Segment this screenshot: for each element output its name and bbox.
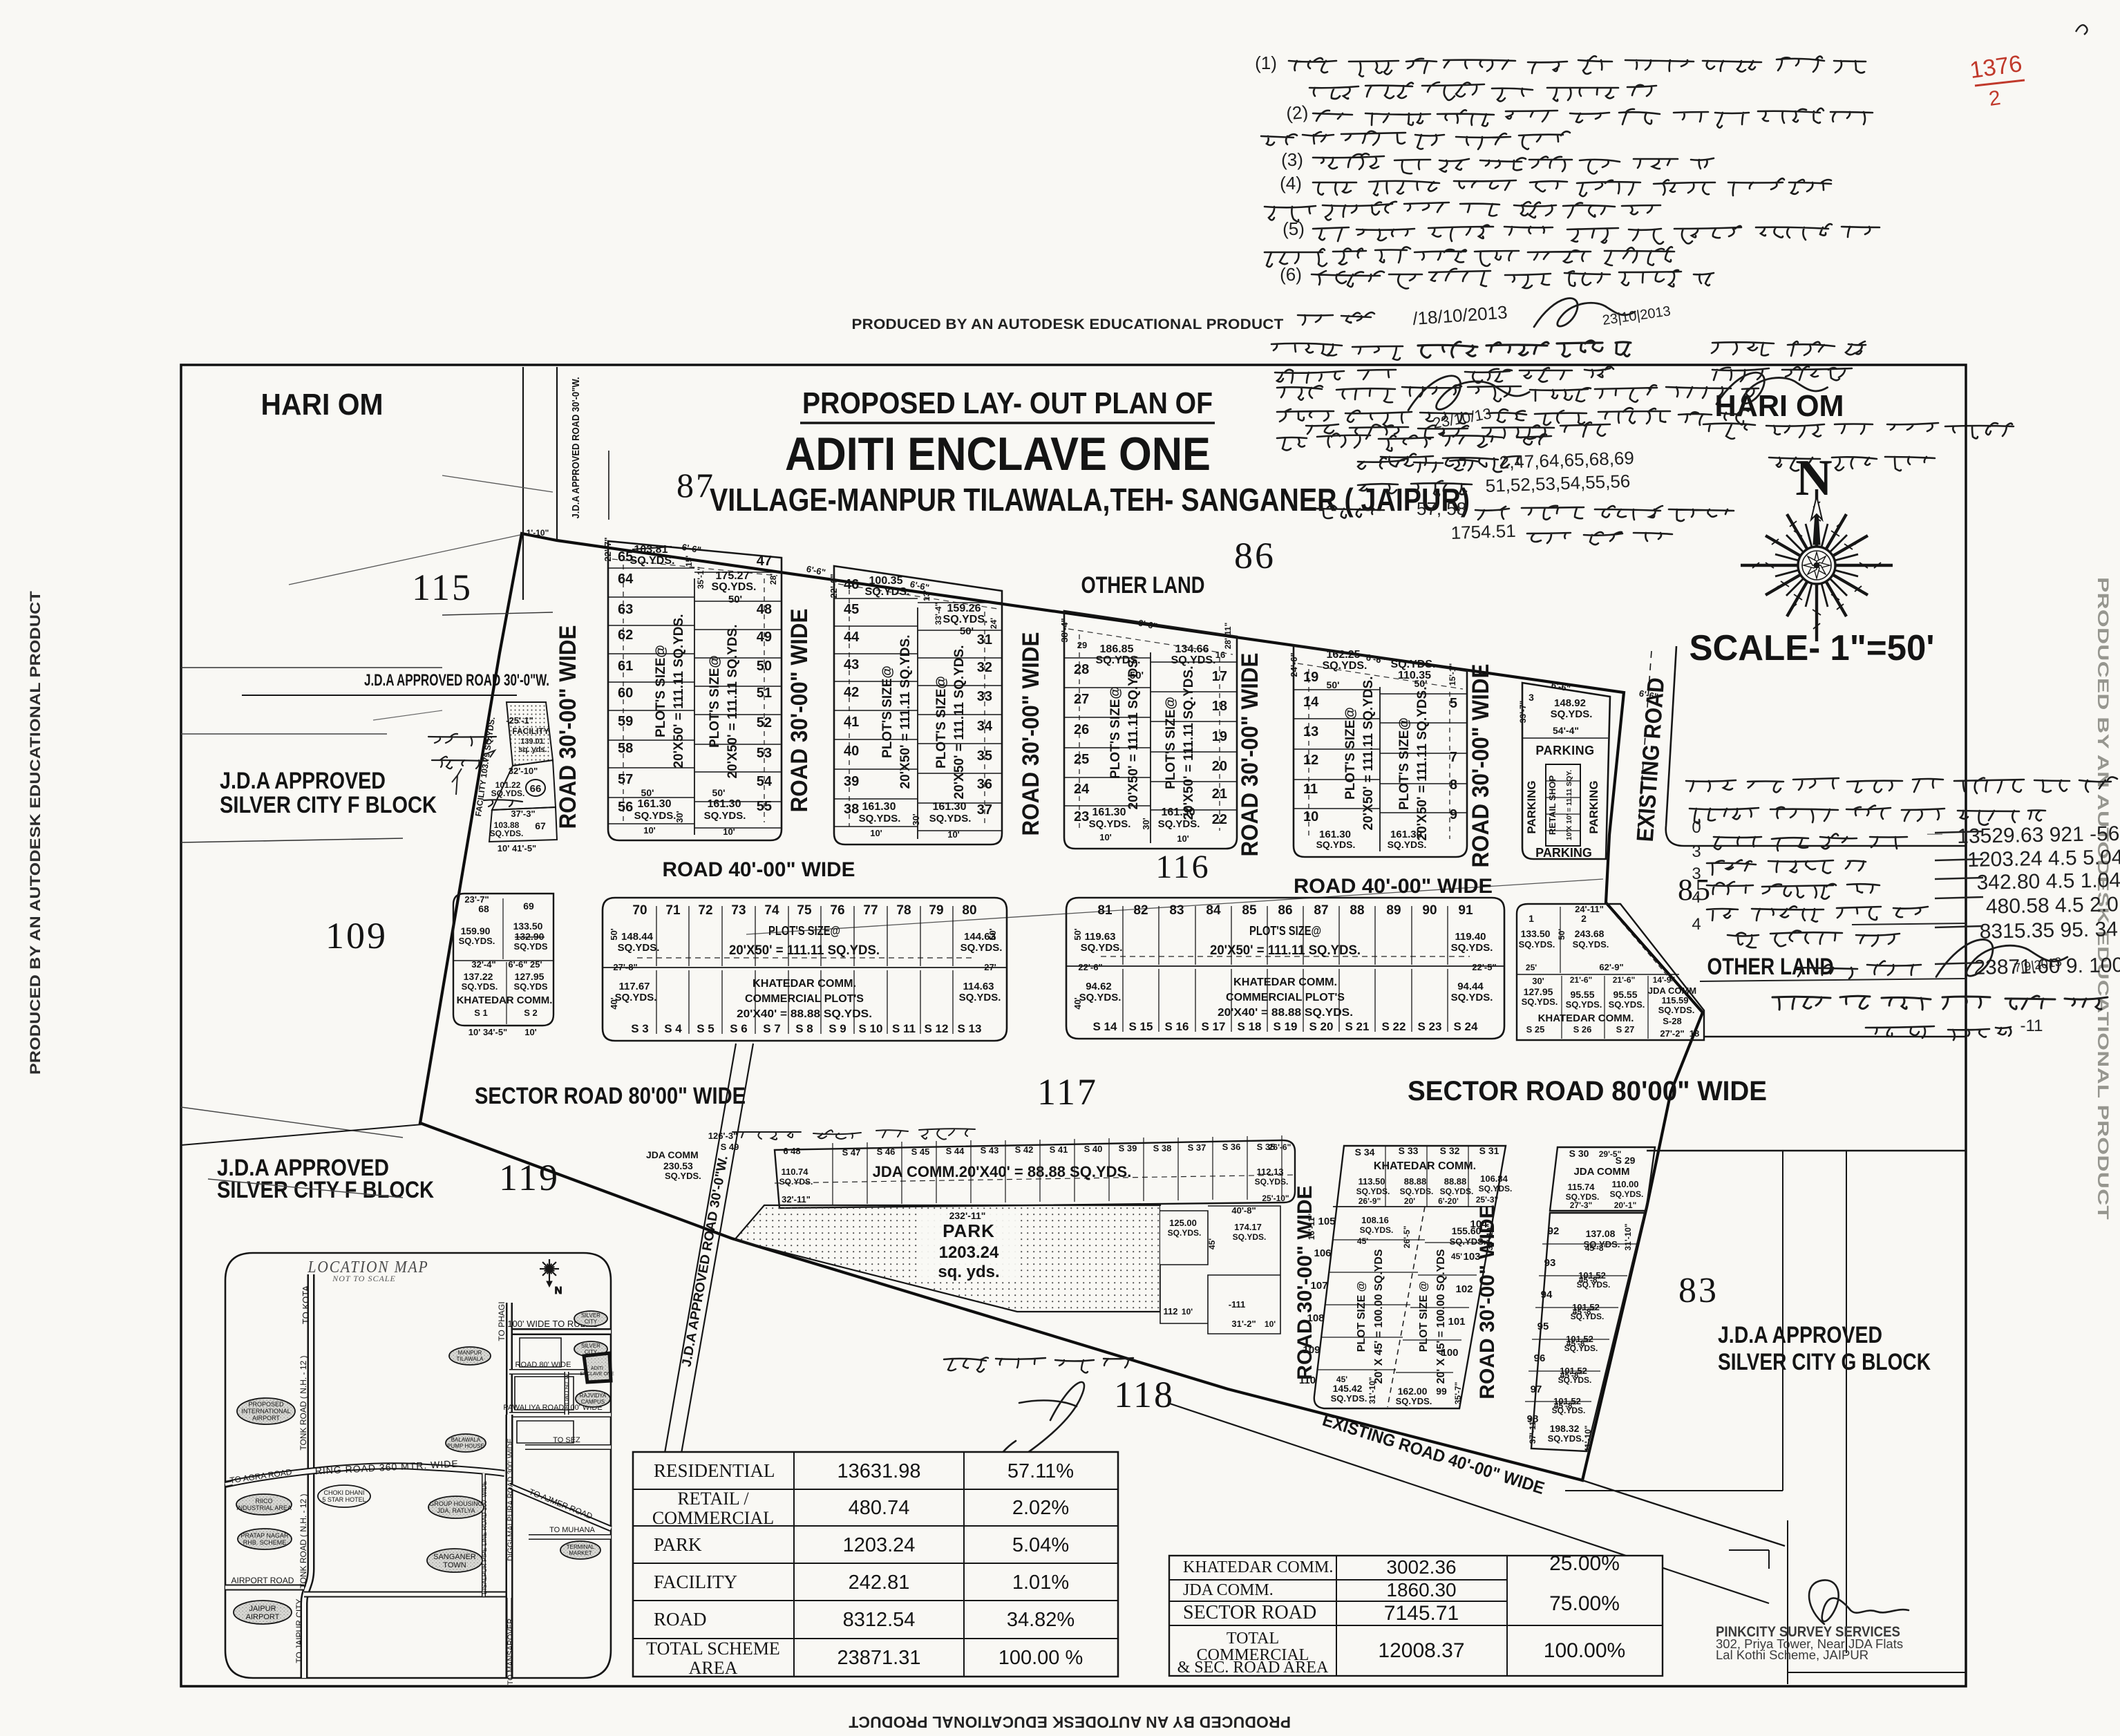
svg-text:BISALPUR PIPE LINE ROAD 100' W: BISALPUR PIPE LINE ROAD 100' WIDE (481, 1481, 488, 1594)
svg-text:S 27: S 27 (1616, 1024, 1635, 1035)
svg-text:35'-7": 35'-7" (1453, 1382, 1463, 1405)
svg-text:SQ.YDS.: SQ.YDS. (490, 829, 524, 838)
svg-text:22'-7": 22'-7" (603, 537, 613, 561)
svg-text:10': 10' (643, 825, 656, 836)
svg-text:36: 36 (977, 777, 992, 792)
svg-text:PLOT'S SIZE@: PLOT'S SIZE@ (1397, 717, 1412, 810)
svg-text:242.81: 242.81 (849, 1572, 910, 1594)
svg-text:ROAD 30'-00" WIDE: ROAD 30'-00" WIDE (1018, 632, 1044, 836)
svg-text:117: 117 (1037, 1071, 1098, 1113)
svg-text:101.52: 101.52 (1566, 1334, 1593, 1344)
svg-text:SQ.YDS.: SQ.YDS. (1158, 818, 1200, 830)
svg-text:79: 79 (929, 903, 943, 918)
svg-text:SQ.YDS.: SQ.YDS. (618, 942, 660, 954)
svg-text:PLOT'S SIZE@: PLOT'S SIZE@ (768, 924, 840, 938)
svg-text:GROUP HOUSING: GROUP HOUSING (429, 1500, 482, 1507)
svg-text:0: 0 (1692, 818, 1701, 837)
svg-text:93: 93 (1544, 1257, 1556, 1269)
svg-text:SQ.YDS.: SQ.YDS. (1451, 942, 1493, 954)
svg-text:KHATEDAR COMM.: KHATEDAR COMM. (1183, 1558, 1333, 1576)
svg-text:119.40: 119.40 (1455, 931, 1486, 943)
svg-text:57: 57 (618, 772, 633, 787)
svg-text:1203.24 4.5 5.04: 1203.24 4.5 5.04 (1967, 846, 2120, 871)
svg-text:HARI OM: HARI OM (1715, 389, 1844, 423)
svg-text:SQ.YDS.: SQ.YDS. (1522, 997, 1558, 1007)
svg-text:9: 9 (1450, 807, 1457, 822)
svg-text:(3): (3) (1281, 149, 1303, 170)
svg-text:89: 89 (1386, 903, 1401, 918)
svg-text:28': 28' (768, 574, 778, 585)
svg-text:133.50: 133.50 (513, 921, 543, 932)
svg-text:90: 90 (1422, 903, 1437, 918)
svg-text:2: 2 (1581, 913, 1587, 924)
svg-text:SQ.YDS.: SQ.YDS. (1451, 992, 1493, 1003)
svg-text:KHATEDAR COMM.: KHATEDAR COMM. (457, 994, 553, 1006)
svg-text:12: 12 (1303, 753, 1318, 768)
svg-text:-111: -111 (1229, 1299, 1246, 1310)
svg-text:S 11: S 11 (892, 1022, 916, 1035)
svg-text:13529.63 921 -56: 13529.63 921 -56 (1957, 822, 2120, 848)
svg-text:N: N (1795, 450, 1832, 507)
svg-text:-11: -11 (2020, 1017, 2043, 1035)
svg-text:103.81: 103.81 (634, 544, 668, 556)
svg-text:J.D.A APPROVED ROAD 30'-0"W.: J.D.A APPROVED ROAD 30'-0"W. (364, 671, 549, 690)
svg-text:(1): (1) (1255, 53, 1277, 73)
svg-text:6'-6" 25': 6'-6" 25' (508, 959, 542, 970)
svg-text:S 31: S 31 (1479, 1145, 1499, 1156)
svg-text:1'-10": 1'-10" (527, 528, 549, 538)
svg-text:SQ.YDS.: SQ.YDS. (1168, 1228, 1202, 1238)
svg-text:161.30: 161.30 (638, 798, 672, 810)
svg-text:94.62: 94.62 (1086, 981, 1112, 992)
svg-text:61: 61 (618, 659, 633, 674)
svg-text:ENCLAVE ONE: ENCLAVE ONE (580, 1372, 614, 1377)
svg-text:ROAD: ROAD (654, 1609, 707, 1630)
svg-text:77: 77 (863, 903, 878, 918)
svg-text:S 18: S 18 (1238, 1020, 1262, 1033)
svg-text:JDA COMM: JDA COMM (646, 1149, 699, 1160)
svg-text:134.66: 134.66 (1175, 643, 1209, 655)
svg-text:113.50: 113.50 (1358, 1176, 1385, 1187)
svg-text:32'-10": 32'-10" (509, 766, 538, 776)
svg-text:161.30: 161.30 (1162, 806, 1195, 818)
svg-text:S 2: S 2 (524, 1008, 538, 1018)
svg-text:JDA COMM.: JDA COMM. (1183, 1581, 1274, 1599)
svg-text:95.55: 95.55 (1570, 989, 1594, 1000)
svg-text:FACILITY: FACILITY (654, 1572, 737, 1592)
svg-text:SQ.YDS.: SQ.YDS. (1552, 1406, 1586, 1415)
svg-text:148.92: 148.92 (1554, 697, 1586, 709)
svg-text:SQ.YDS.: SQ.YDS. (1391, 659, 1436, 670)
svg-text:39: 39 (844, 774, 859, 789)
svg-text:CITY: CITY (585, 1319, 598, 1325)
svg-text:8315.35 95. 34: 8315.35 95. 34 (1979, 918, 2118, 943)
svg-text:20'X50' = 111.11 SQ.YDS.: 20'X50' = 111.11 SQ.YDS. (672, 614, 686, 768)
svg-text:TO SEZ: TO SEZ (553, 1436, 580, 1444)
svg-text:19: 19 (1303, 670, 1318, 685)
svg-text:67: 67 (535, 820, 546, 831)
svg-text:(5): (5) (1283, 218, 1305, 239)
svg-text:114.63: 114.63 (963, 981, 994, 992)
svg-text:PLOT'S SIZE@: PLOT'S SIZE@ (1108, 686, 1123, 779)
svg-text:19: 19 (1212, 729, 1227, 744)
svg-text:44: 44 (844, 630, 860, 645)
svg-text:35: 35 (977, 748, 992, 764)
svg-text:SQ.YDS.: SQ.YDS. (1255, 1177, 1289, 1187)
svg-text:22'-6": 22'-6" (1078, 962, 1102, 972)
svg-text:6'-20': 6'-20' (1438, 1196, 1459, 1206)
svg-text:41: 41 (844, 715, 859, 730)
svg-text:102: 102 (1455, 1283, 1473, 1295)
svg-text:J.D.A APPROVED: J.D.A APPROVED (220, 768, 386, 794)
svg-text:68: 68 (478, 903, 489, 914)
svg-text:94.44: 94.44 (1457, 981, 1484, 992)
svg-text:88: 88 (1350, 903, 1364, 918)
svg-text:S 6: S 6 (730, 1022, 748, 1035)
svg-text:RESIDENTIAL: RESIDENTIAL (654, 1460, 775, 1481)
svg-text:KHATEDAR COMM.: KHATEDAR COMM. (1233, 976, 1337, 988)
svg-text:S 38: S 38 (1153, 1143, 1172, 1153)
svg-text:30': 30' (1532, 976, 1544, 986)
svg-text:20'X40' = 88.88 SQ.YDS.: 20'X40' = 88.88 SQ.YDS. (1218, 1007, 1353, 1019)
svg-text:30': 30' (911, 813, 921, 826)
svg-text:PLOT'S SIZE@: PLOT'S SIZE@ (708, 655, 722, 748)
svg-text:115.59: 115.59 (1661, 995, 1688, 1006)
svg-text:5 STAR HOTEL: 5 STAR HOTEL (322, 1496, 366, 1503)
svg-text:20'-1": 20'-1" (1614, 1200, 1637, 1210)
svg-text:SQ.YDS.: SQ.YDS. (1577, 1280, 1611, 1290)
svg-text:54: 54 (757, 774, 773, 789)
svg-text:SQ.YDS.: SQ.YDS. (1400, 1187, 1434, 1196)
svg-text:SQ.YDS.: SQ.YDS. (943, 614, 988, 625)
svg-text:29'-5": 29'-5" (1599, 1149, 1622, 1159)
svg-text:14'-9": 14'-9" (1653, 975, 1676, 985)
svg-text:85: 85 (1242, 903, 1257, 918)
svg-text:SQ.YDS.: SQ.YDS. (1233, 1232, 1267, 1242)
svg-text:24'-6": 24'-6" (1289, 652, 1299, 677)
svg-text:S 39: S 39 (1119, 1143, 1137, 1153)
svg-text:JDA COMM: JDA COMM (1648, 985, 1696, 996)
svg-text:101.52: 101.52 (1578, 1270, 1606, 1281)
svg-text:83: 83 (1678, 1271, 1719, 1310)
svg-text:SQ.YDS.: SQ.YDS. (1171, 654, 1216, 666)
svg-text:51: 51 (757, 686, 772, 701)
svg-text:72: 72 (698, 903, 712, 918)
svg-text:PARKING: PARKING (1525, 780, 1538, 833)
svg-text:PRODUCED BY AN AUTODESK EDUCAT: PRODUCED BY AN AUTODESK EDUCATIONAL PROD… (28, 591, 44, 1075)
svg-text:20'X50' = 111.11 SQ.YDS.: 20'X50' = 111.11 SQ.YDS. (726, 625, 740, 779)
svg-text:TO PHAGI: TO PHAGI (497, 1301, 507, 1341)
svg-text:26'-5": 26'-5" (1402, 1226, 1412, 1249)
svg-text:ROAD 30'-00" WIDE: ROAD 30'-00" WIDE (1237, 653, 1263, 857)
svg-text:3: 3 (1692, 842, 1701, 861)
svg-text:23: 23 (1074, 809, 1089, 824)
svg-text:21'-6": 21'-6" (1570, 975, 1593, 985)
svg-text:13631.98: 13631.98 (837, 1460, 921, 1482)
svg-text:RETAIL /: RETAIL / (677, 1489, 749, 1509)
svg-text:ROAD 40'-00" WIDE: ROAD 40'-00" WIDE (663, 858, 855, 881)
svg-text:S 15: S 15 (1129, 1020, 1153, 1033)
svg-text:10': 10' (947, 829, 960, 840)
svg-text:N: N (555, 1285, 562, 1296)
svg-text:SANGANER: SANGANER (433, 1553, 476, 1561)
svg-text:105: 105 (1318, 1216, 1335, 1227)
svg-text:AREA: AREA (689, 1658, 738, 1678)
svg-text:106: 106 (1314, 1247, 1331, 1259)
svg-text:& SEC. ROAD AREA: & SEC. ROAD AREA (1177, 1659, 1329, 1677)
svg-text:S 30: S 30 (1569, 1148, 1589, 1159)
svg-text:S 22: S 22 (1382, 1020, 1406, 1033)
svg-text:101.52: 101.52 (1553, 1396, 1581, 1406)
svg-text:S 12: S 12 (925, 1022, 949, 1035)
svg-text:KHATEDAR COMM.: KHATEDAR COMM. (1374, 1160, 1476, 1172)
svg-text:71: 71 (665, 903, 681, 918)
svg-text:54'-4": 54'-4" (1553, 725, 1579, 736)
svg-text:SQ.YDS.: SQ.YDS. (1356, 1187, 1390, 1196)
svg-text:78: 78 (896, 903, 911, 918)
svg-text:ADITI: ADITI (591, 1366, 603, 1371)
svg-text:28: 28 (1074, 662, 1089, 677)
svg-text:86: 86 (1278, 903, 1292, 918)
svg-text:SQ.YDS.: SQ.YDS. (1566, 999, 1602, 1010)
svg-text:161.30: 161.30 (862, 801, 896, 813)
svg-text:53: 53 (757, 746, 772, 761)
svg-text:SQ.YDS.: SQ.YDS. (1396, 1396, 1432, 1406)
svg-text:27'-8": 27'-8" (613, 962, 637, 972)
svg-text:82: 82 (1133, 903, 1148, 918)
svg-text:81: 81 (1097, 903, 1113, 918)
svg-text:SECTOR ROAD: SECTOR ROAD (1183, 1602, 1316, 1623)
svg-text:20'X50' = 111.11 SQ.YDS.: 20'X50' = 111.11 SQ.YDS. (729, 943, 880, 958)
svg-text:10': 10' (524, 1027, 537, 1037)
svg-text:132.90: 132.90 (515, 931, 545, 942)
svg-text:ROAD 80' WIDE: ROAD 80' WIDE (515, 1361, 571, 1369)
svg-text:31'-2": 31'-2" (1231, 1319, 1256, 1329)
svg-text:21'-6": 21'-6" (1613, 975, 1636, 985)
svg-text:133.50: 133.50 (1521, 928, 1551, 939)
svg-text:10'X 10' = 11.11 SQY.: 10'X 10' = 11.11 SQY. (1565, 770, 1573, 840)
svg-text:59: 59 (618, 714, 633, 729)
svg-text:OTHER LAND: OTHER LAND (1081, 572, 1205, 598)
svg-text:S 9: S 9 (829, 1022, 846, 1035)
svg-text:S 33: S 33 (1399, 1145, 1419, 1156)
svg-text:RAJVIDYA: RAJVIDYA (580, 1393, 607, 1399)
svg-text:31: 31 (977, 632, 992, 648)
svg-text:174.17: 174.17 (1234, 1222, 1262, 1232)
svg-text:-25'-1": -25'-1" (506, 715, 533, 726)
svg-text:60: 60 (618, 686, 633, 701)
svg-text:161.30: 161.30 (933, 801, 967, 813)
svg-text:20'X50' = 111.11 SQ.YDS.: 20'X50' = 111.11 SQ.YDS. (1182, 666, 1196, 820)
svg-text:S 41: S 41 (1050, 1144, 1068, 1155)
svg-text:15': 15' (684, 556, 694, 567)
svg-text:46: 46 (844, 577, 859, 592)
svg-text:94: 94 (1541, 1289, 1553, 1301)
svg-text:230.53: 230.53 (663, 1160, 693, 1171)
svg-text:SQ.YDS.: SQ.YDS. (1323, 660, 1367, 672)
svg-text:1203.24: 1203.24 (843, 1534, 916, 1556)
svg-text:42: 42 (844, 685, 859, 700)
svg-text:PLOT'S SIZE@: PLOT'S SIZE@ (934, 676, 949, 768)
svg-text:SQ.YDS.: SQ.YDS. (615, 992, 657, 1003)
svg-text:PROPOSED LAY- OUT PLAN OF: PROPOSED LAY- OUT PLAN OF (802, 386, 1213, 420)
svg-text:S 37: S 37 (1188, 1142, 1206, 1153)
svg-text:40': 40' (1072, 997, 1083, 1010)
svg-text:1203.24: 1203.24 (939, 1243, 999, 1262)
svg-text:115: 115 (412, 567, 473, 608)
svg-text:20'X50' = 111.11 SQ.YDS.: 20'X50' = 111.11 SQ.YDS. (1210, 943, 1361, 958)
svg-text:6 48: 6 48 (783, 1146, 800, 1156)
svg-text:52: 52 (757, 715, 772, 730)
svg-text:PRODUCED BY AN AUTODESK EDUCAT: PRODUCED BY AN AUTODESK EDUCATIONAL PROD… (852, 317, 1284, 332)
svg-text:27'-3": 27'-3" (1570, 1200, 1593, 1210)
svg-text:10: 10 (1303, 809, 1318, 824)
svg-text:186.85: 186.85 (1100, 643, 1134, 655)
svg-text:21: 21 (1212, 786, 1227, 802)
svg-text:TONK ROAD ( N.H. - 12 ): TONK ROAD ( N.H. - 12 ) (299, 1493, 308, 1588)
svg-text:SQ.YDS.: SQ.YDS. (1558, 1375, 1592, 1385)
svg-text:25.00%: 25.00% (1549, 1552, 1620, 1575)
svg-text:101: 101 (1448, 1316, 1465, 1328)
svg-text:40': 40' (609, 997, 619, 1010)
svg-text:29: 29 (1077, 640, 1087, 650)
svg-text:198.32: 198.32 (1550, 1423, 1580, 1434)
svg-text:40: 40 (844, 744, 859, 759)
svg-text:24: 24 (1074, 782, 1090, 797)
svg-text:86: 86 (1234, 535, 1276, 576)
svg-text:HARI OM: HARI OM (261, 388, 384, 422)
svg-text:110.74: 110.74 (781, 1167, 808, 1177)
svg-text:S 23: S 23 (1418, 1020, 1442, 1033)
svg-text:COMMERCIAL: COMMERCIAL (652, 1508, 774, 1528)
svg-text:SQ.YDS.: SQ.YDS. (704, 810, 746, 822)
svg-text:88.88: 88.88 (1404, 1176, 1427, 1187)
svg-text:20: 20 (1212, 759, 1227, 774)
svg-text:24'-11": 24'-11" (1575, 904, 1604, 914)
svg-text:33'-4": 33'-4" (934, 603, 943, 625)
svg-text:27'-2": 27'-2" (1660, 1028, 1684, 1039)
svg-text:SQ.YDS: SQ.YDS (513, 981, 547, 992)
svg-text:38: 38 (844, 802, 859, 817)
svg-text:34: 34 (977, 719, 993, 734)
svg-text:S 36: S 36 (1222, 1142, 1241, 1152)
svg-text:92: 92 (1548, 1225, 1560, 1237)
svg-text:MANPUR: MANPUR (458, 1350, 482, 1356)
svg-text:RETAIL SHOP: RETAIL SHOP (1547, 775, 1558, 836)
svg-text:3: 3 (1529, 692, 1534, 703)
svg-text:2.02%: 2.02% (1012, 1497, 1069, 1519)
svg-text:106.84: 106.84 (1480, 1173, 1508, 1184)
svg-text:sq. yds.: sq. yds. (938, 1263, 999, 1281)
svg-text:CHOKI DHANI: CHOKI DHANI (323, 1489, 364, 1496)
svg-text:342.80 4.5 1.04: 342.80 4.5 1.04 (1976, 869, 2120, 894)
svg-text:115.74: 115.74 (1567, 1182, 1595, 1192)
svg-text:69: 69 (523, 900, 534, 912)
svg-text:20' X 45' = 100.00 SQ.YDS: 20' X 45' = 100.00 SQ.YDS (1373, 1249, 1385, 1384)
svg-text:10' 34'-5": 10' 34'-5" (469, 1027, 507, 1037)
svg-text:175.27: 175.27 (716, 570, 750, 582)
svg-text:26: 26 (1074, 722, 1089, 737)
svg-text:23871.31: 23871.31 (837, 1647, 921, 1669)
svg-text:SQ.YDS.: SQ.YDS. (929, 813, 972, 824)
svg-text:101.52: 101.52 (1572, 1302, 1600, 1312)
svg-text:27: 27 (1074, 692, 1089, 707)
svg-text:45': 45' (1357, 1236, 1368, 1246)
svg-text:S 19: S 19 (1274, 1020, 1298, 1033)
svg-text:18: 18 (1212, 699, 1227, 714)
svg-text:50': 50' (712, 787, 726, 798)
svg-text:33: 33 (977, 689, 992, 704)
svg-text:SQ.YDS.: SQ.YDS. (1479, 1184, 1513, 1193)
svg-text:(6): (6) (1280, 264, 1302, 285)
svg-text:J.D.A APPROVED ROAD 30'-0"W.: J.D.A APPROVED ROAD 30'-0"W. (570, 377, 582, 519)
svg-text:SQ.YDS: SQ.YDS (513, 941, 547, 952)
svg-text:75: 75 (797, 903, 812, 918)
svg-text:DIGGI-MALPURA ROAD 300' WIDE: DIGGI-MALPURA ROAD 300' WIDE (507, 1438, 515, 1561)
svg-text:161.30: 161.30 (708, 798, 741, 810)
svg-text:S 47: S 47 (842, 1147, 861, 1158)
svg-text:1: 1 (1529, 913, 1534, 924)
svg-text:3: 3 (1692, 865, 1701, 883)
svg-text:37'-11": 37'-11" (1528, 1417, 1537, 1444)
svg-text:50': 50' (1072, 928, 1083, 941)
svg-text:45: 45 (844, 602, 859, 617)
svg-text:7145.71: 7145.71 (1384, 1602, 1459, 1625)
svg-text:80: 80 (962, 903, 976, 918)
svg-text:Lal Kothi Scheme, JAIPUR: Lal Kothi Scheme, JAIPUR (1716, 1648, 1868, 1662)
svg-text:57, 58: 57, 58 (1417, 498, 1466, 519)
svg-text:25'-3": 25'-3" (1476, 1195, 1499, 1205)
svg-text:41'-10": 41'-10" (1583, 1425, 1593, 1452)
svg-text:20'X40' = 88.88 SQ.YDS.: 20'X40' = 88.88 SQ.YDS. (737, 1008, 872, 1020)
svg-text:112: 112 (1164, 1306, 1178, 1317)
svg-text:S 25: S 25 (1526, 1024, 1545, 1035)
svg-text:S 16: S 16 (1165, 1020, 1189, 1033)
svg-text:26'-6": 26'-6" (1269, 1142, 1291, 1152)
svg-text:75.00%: 75.00% (1549, 1592, 1620, 1615)
svg-text:PLOT'S SIZE@: PLOT'S SIZE@ (880, 666, 895, 758)
svg-text:S 10: S 10 (859, 1022, 883, 1035)
svg-text:S 26: S 26 (1573, 1024, 1592, 1035)
svg-text:43: 43 (844, 657, 859, 672)
svg-text:S 42: S 42 (1015, 1144, 1034, 1155)
svg-text:31'-10": 31'-10" (1367, 1377, 1377, 1404)
svg-text:55: 55 (757, 799, 772, 814)
svg-text:20'X50' = 111.11 SQ.YDS.: 20'X50' = 111.11 SQ.YDS. (1415, 687, 1430, 841)
svg-text:AIRPORT: AIRPORT (246, 1613, 280, 1621)
svg-text:SILVER: SILVER (581, 1312, 600, 1319)
svg-text:JDA COMM: JDA COMM (1573, 1166, 1629, 1178)
svg-text:S 1: S 1 (474, 1008, 488, 1018)
svg-text:PARKING: PARKING (1535, 846, 1592, 860)
svg-text:50': 50' (1130, 670, 1144, 681)
svg-text:TO MANSAROVER: TO MANSAROVER (507, 1619, 515, 1685)
svg-text:50': 50' (987, 928, 998, 941)
svg-text:10': 10' (1265, 1319, 1276, 1329)
svg-text:16: 16 (1215, 650, 1225, 660)
svg-text:TO JAIPUR CITY: TO JAIPUR CITY (294, 1598, 304, 1663)
svg-text:110.00: 110.00 (1611, 1179, 1638, 1189)
svg-text:139.01: 139.01 (520, 737, 544, 746)
svg-text:137.22: 137.22 (464, 971, 493, 982)
svg-text:8312.54: 8312.54 (843, 1609, 916, 1631)
svg-text:145.42: 145.42 (1333, 1383, 1363, 1394)
svg-text:SQ.YDS.: SQ.YDS. (1564, 1343, 1598, 1353)
svg-text:SILVER CITY F BLOCK: SILVER CITY F BLOCK (220, 792, 437, 818)
svg-text:11: 11 (1303, 782, 1318, 797)
svg-text:S 34: S 34 (1355, 1147, 1375, 1158)
svg-text:243.68: 243.68 (1575, 928, 1605, 939)
